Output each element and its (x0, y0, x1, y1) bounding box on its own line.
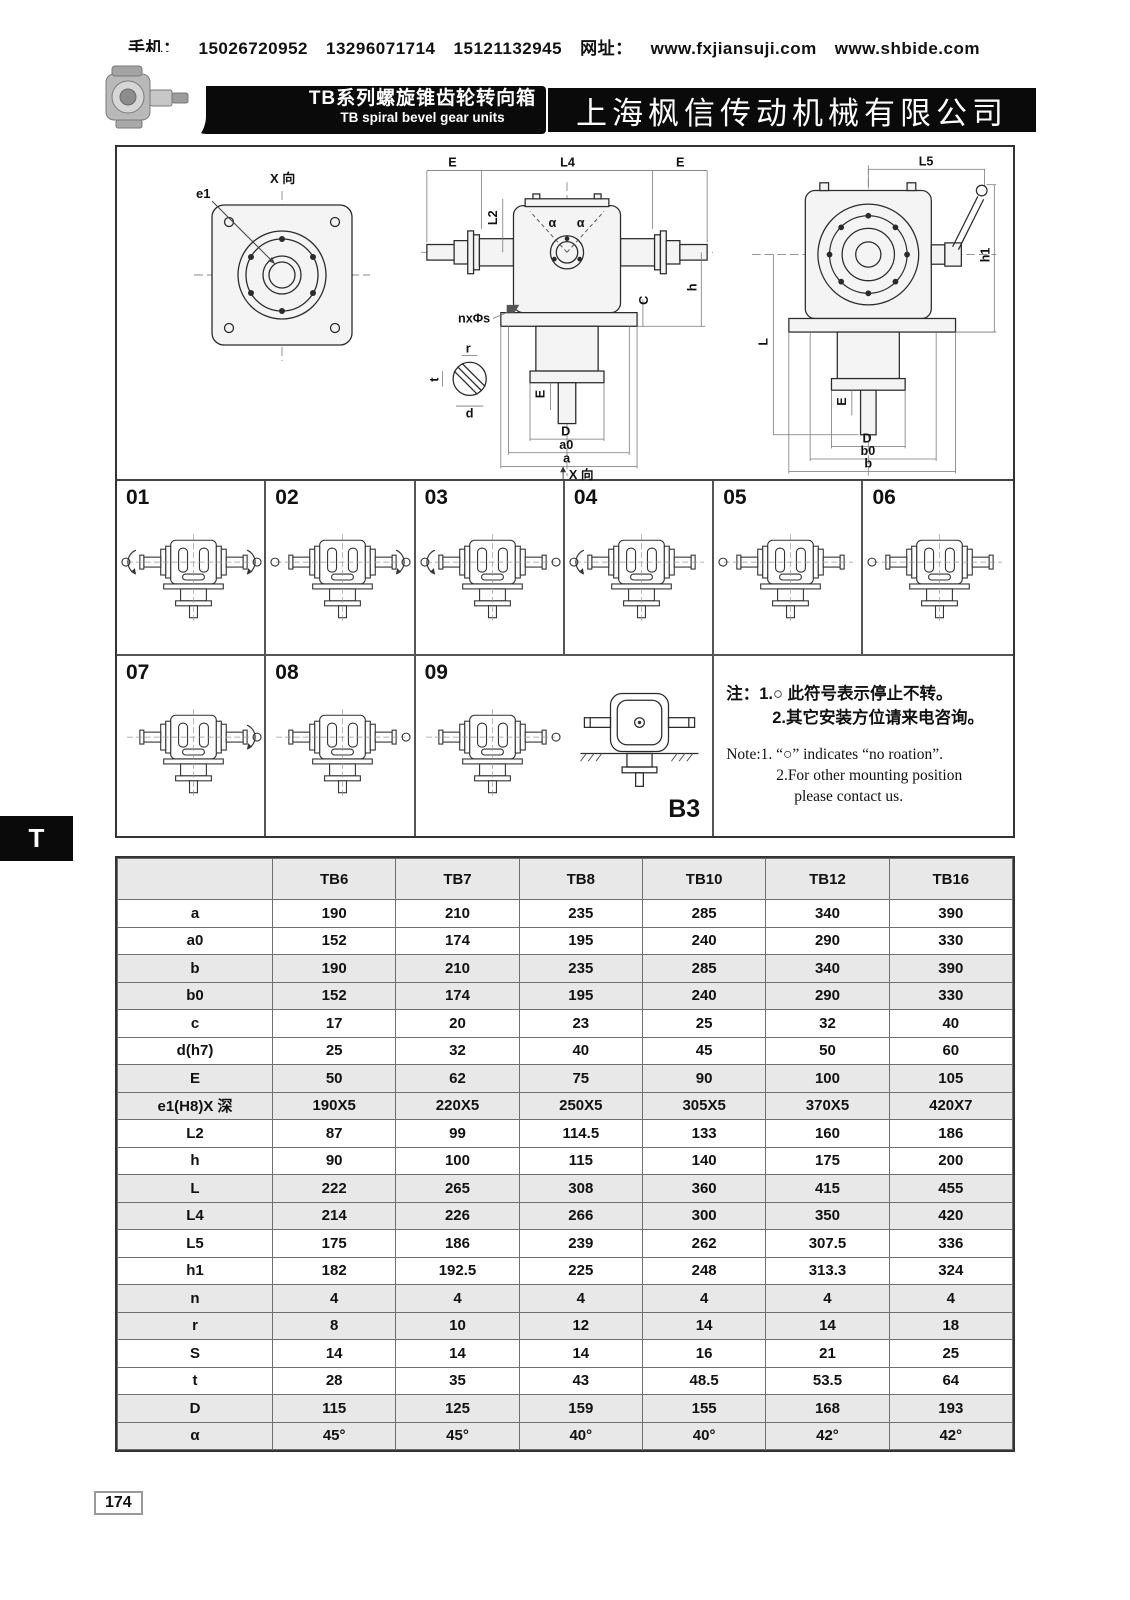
table-cell: 220X5 (396, 1092, 519, 1120)
mounting-position-cell: 08 (266, 656, 415, 836)
table-cell: 60 (889, 1037, 1012, 1065)
note-en-line3: please contact us. (794, 786, 1008, 807)
table-cell: 40° (642, 1422, 765, 1450)
table-cell: 8 (273, 1312, 396, 1340)
table-cell: 305X5 (642, 1092, 765, 1120)
dim-label-t: t (428, 377, 442, 382)
mounting-position-label: 05 (723, 486, 746, 510)
table-cell: 48.5 (642, 1367, 765, 1395)
row-label: n (118, 1285, 273, 1313)
mounting-position-cell: 06 (863, 481, 1012, 654)
row-label: L4 (118, 1202, 273, 1230)
dim-label-E-side: E (835, 397, 849, 405)
table-cell: 100 (766, 1065, 889, 1093)
mounting-position-label: 08 (275, 661, 298, 685)
row-label: b (118, 955, 273, 983)
gearbox-position-icon (565, 519, 714, 637)
table-row: b190210235285340390 (118, 955, 1013, 983)
mounting-position-label: 03 (425, 486, 448, 510)
row-label: S (118, 1340, 273, 1368)
table-cell: 290 (766, 927, 889, 955)
gearbox-position-icon (863, 519, 1012, 637)
b3-mounting-icon (567, 678, 712, 798)
row-label: c (118, 1010, 273, 1038)
dim-label-L4: L4 (560, 156, 575, 170)
table-cell: 420X7 (889, 1092, 1012, 1120)
dim-label-nxs: nxΦs (458, 311, 490, 325)
dim-label-h: h (685, 284, 699, 292)
table-cell: 115 (273, 1395, 396, 1423)
phone-3: 15121132945 (454, 39, 563, 58)
table-cell: 192.5 (396, 1257, 519, 1285)
table-cell: 225 (519, 1257, 642, 1285)
gearbox-position-icon (266, 694, 415, 812)
table-cell: 214 (273, 1202, 396, 1230)
table-cell: 330 (889, 982, 1012, 1010)
table-cell: 159 (519, 1395, 642, 1423)
dim-label-E-right: E (676, 156, 684, 170)
section-tab-letter: T (29, 823, 45, 854)
table-cell: 25 (889, 1340, 1012, 1368)
row-label: α (118, 1422, 273, 1450)
table-cell: 152 (273, 927, 396, 955)
table-row: D115125159155168193 (118, 1395, 1013, 1423)
page-number: 174 (94, 1491, 143, 1515)
table-cell: 455 (889, 1175, 1012, 1203)
section-tab: T (0, 816, 73, 861)
column-header: TB16 (889, 859, 1012, 900)
table-row: h1182192.5225248313.3324 (118, 1257, 1013, 1285)
table-cell: 4 (519, 1285, 642, 1313)
table-cell: 239 (519, 1230, 642, 1258)
table-cell: 125 (396, 1395, 519, 1423)
mounting-position-label: 02 (275, 486, 298, 510)
table-cell: 265 (396, 1175, 519, 1203)
table-cell: 25 (273, 1037, 396, 1065)
dim-label-d: d (466, 407, 474, 421)
product-photo (84, 54, 204, 146)
gearbox-position-icon (416, 694, 565, 812)
row-label: L (118, 1175, 273, 1203)
dim-label-a: a (563, 452, 571, 466)
dim-label-alpha-right: α (577, 216, 585, 230)
table-cell: 210 (396, 955, 519, 983)
table-cell: 14 (396, 1340, 519, 1368)
table-cell: 313.3 (766, 1257, 889, 1285)
view-direction-label: X 向 (270, 171, 295, 186)
table-cell: 40 (889, 1010, 1012, 1038)
table-row: r81012141418 (118, 1312, 1013, 1340)
dim-label-E-left: E (448, 156, 456, 170)
table-cell: 420 (889, 1202, 1012, 1230)
table-row: b0152174195240290330 (118, 982, 1013, 1010)
dimensions-table: TB6TB7TB8TB10TB12TB16 a19021023528534039… (115, 856, 1015, 1452)
table-cell: 35 (396, 1367, 519, 1395)
table-cell: 186 (396, 1230, 519, 1258)
table-cell: 340 (766, 955, 889, 983)
table-cell: 300 (642, 1202, 765, 1230)
web-label: 网址： (580, 39, 633, 58)
table-cell: 45° (396, 1422, 519, 1450)
dim-label-e1: e1 (196, 186, 210, 201)
table-cell: 4 (396, 1285, 519, 1313)
table-cell: 390 (889, 900, 1012, 928)
gearbox-position-icon (714, 519, 863, 637)
table-cell: 200 (889, 1147, 1012, 1175)
table-row: E50627590100105 (118, 1065, 1013, 1093)
table-cell: 174 (396, 982, 519, 1010)
column-header: TB6 (273, 859, 396, 900)
view-direction-bottom: X 向 (569, 467, 594, 481)
table-cell: 190 (273, 955, 396, 983)
table-cell: 160 (766, 1120, 889, 1148)
note-en-line1: Note:1. “○” indicates “no roation”. (726, 744, 1008, 765)
table-cell: 90 (273, 1147, 396, 1175)
table-cell: 62 (396, 1065, 519, 1093)
dim-label-C: C (637, 296, 651, 305)
series-title-zh: TB系列螺旋锥齿轮转向箱 (300, 88, 545, 110)
row-label: E (118, 1065, 273, 1093)
table-cell: 16 (642, 1340, 765, 1368)
table-cell: 140 (642, 1147, 765, 1175)
mounting-position-cell: 02 (266, 481, 415, 654)
page-number-value: 174 (105, 1494, 132, 1511)
table-row: t28354348.553.564 (118, 1367, 1013, 1395)
table-cell: 28 (273, 1367, 396, 1395)
table-cell: 14 (642, 1312, 765, 1340)
dim-label-L: L (757, 338, 771, 346)
table-cell: 100 (396, 1147, 519, 1175)
column-header: TB12 (766, 859, 889, 900)
table-cell: 20 (396, 1010, 519, 1038)
row-label: e1(H8)X 深 (118, 1092, 273, 1120)
table-cell: 360 (642, 1175, 765, 1203)
table-cell: 195 (519, 982, 642, 1010)
note-zh-line2: 2.其它安装方位请来电咨询。 (772, 706, 1008, 730)
dimension-drawings: e1 X 向 E L4 E (117, 147, 1013, 481)
table-cell: 4 (642, 1285, 765, 1313)
table-cell: 115 (519, 1147, 642, 1175)
mounting-position-label: 09 (425, 661, 448, 685)
table-row: S141414162125 (118, 1340, 1013, 1368)
series-title-en: TB spiral bevel gear units (300, 110, 545, 126)
table-cell: 4 (766, 1285, 889, 1313)
table-cell: 168 (766, 1395, 889, 1423)
table-cell: 336 (889, 1230, 1012, 1258)
table-cell: 235 (519, 900, 642, 928)
dim-label-L2: L2 (486, 210, 500, 225)
table-cell: 235 (519, 955, 642, 983)
table-row: n444444 (118, 1285, 1013, 1313)
table-cell: 193 (889, 1395, 1012, 1423)
dim-label-b: b (864, 457, 872, 471)
mounting-position-label: 07 (126, 661, 149, 685)
table-cell: 42° (889, 1422, 1012, 1450)
table-cell: 18 (889, 1312, 1012, 1340)
row-label: b0 (118, 982, 273, 1010)
table-cell: 262 (642, 1230, 765, 1258)
table-cell: 190 (273, 900, 396, 928)
table-cell: 390 (889, 955, 1012, 983)
table-cell: 340 (766, 900, 889, 928)
gearbox-position-icon (117, 694, 266, 812)
table-cell: 152 (273, 982, 396, 1010)
table-cell: 290 (766, 982, 889, 1010)
dim-label-r: r (466, 342, 471, 356)
table-cell: 175 (766, 1147, 889, 1175)
website-1: www.fxjiansuji.com (651, 39, 817, 58)
table-cell: 240 (642, 982, 765, 1010)
table-cell: 174 (396, 927, 519, 955)
series-title: TB系列螺旋锥齿轮转向箱 TB spiral bevel gear units (300, 88, 545, 126)
table-cell: 17 (273, 1010, 396, 1038)
left-view-drawing: e1 X 向 (177, 165, 387, 370)
note-zh-line1: 注：1.○ 此符号表示停止不转。 (726, 682, 1008, 706)
column-header: TB10 (642, 859, 765, 900)
table-cell: 324 (889, 1257, 1012, 1285)
company-name-bar: 上海枫信传动机械有限公司 (548, 88, 1036, 132)
table-cell: 330 (889, 927, 1012, 955)
table-cell: 45° (273, 1422, 396, 1450)
dim-label-alpha-left: α (549, 216, 557, 230)
table-cell: 105 (889, 1065, 1012, 1093)
gearbox-position-icon (416, 519, 565, 637)
table-cell: 10 (396, 1312, 519, 1340)
mounting-b3-cell: B3 (565, 656, 714, 836)
row-label: h1 (118, 1257, 273, 1285)
note-en-line2: 2.For other mounting position (776, 765, 1008, 786)
table-row: a0152174195240290330 (118, 927, 1013, 955)
contact-line: 手机：150267209521329607171415121132945网址：w… (128, 34, 1088, 59)
table-cell: 370X5 (766, 1092, 889, 1120)
table-cell: 45 (642, 1037, 765, 1065)
table-cell: 285 (642, 900, 765, 928)
row-label: D (118, 1395, 273, 1423)
mounting-position-cell: 03 (416, 481, 565, 654)
table-cell: 32 (396, 1037, 519, 1065)
table-cell: 226 (396, 1202, 519, 1230)
dim-label-L5: L5 (919, 155, 934, 168)
table-cell: 266 (519, 1202, 642, 1230)
phone-1: 15026720952 (199, 39, 309, 58)
table-cell: 240 (642, 927, 765, 955)
table-row: L28799114.5133160186 (118, 1120, 1013, 1148)
website-2: www.shbide.com (835, 39, 980, 58)
mounting-position-cell: 05 (714, 481, 863, 654)
mounting-position-label: 04 (574, 486, 597, 510)
mounting-position-cell: 09 (416, 656, 565, 836)
table-cell: 415 (766, 1175, 889, 1203)
table-cell: 99 (396, 1120, 519, 1148)
table-cell: 175 (273, 1230, 396, 1258)
gearbox-position-icon (266, 519, 415, 637)
dim-label-D: D (561, 424, 570, 438)
table-row: c172023253240 (118, 1010, 1013, 1038)
table-cell: 182 (273, 1257, 396, 1285)
row-label: a0 (118, 927, 273, 955)
table-cell: 43 (519, 1367, 642, 1395)
row-label: t (118, 1367, 273, 1395)
b3-label: B3 (668, 795, 700, 824)
table-cell: 308 (519, 1175, 642, 1203)
gearbox-position-icon (117, 519, 266, 637)
front-view-drawing: E L4 E (412, 155, 722, 481)
table-cell: 75 (519, 1065, 642, 1093)
table-cell: 32 (766, 1010, 889, 1038)
table-cell: 40° (519, 1422, 642, 1450)
mounting-position-label: 06 (872, 486, 895, 510)
table-cell: 4 (273, 1285, 396, 1313)
table-cell: 133 (642, 1120, 765, 1148)
table-row: L5175186239262307.5336 (118, 1230, 1013, 1258)
table-cell: 40 (519, 1037, 642, 1065)
table-cell: 50 (766, 1037, 889, 1065)
row-label: L5 (118, 1230, 273, 1258)
main-panel: e1 X 向 E L4 E (115, 145, 1015, 838)
mounting-position-cell: 01 (117, 481, 266, 654)
mounting-position-label: 01 (126, 486, 149, 510)
table-row: a190210235285340390 (118, 900, 1013, 928)
row-label: r (118, 1312, 273, 1340)
table-cell: 12 (519, 1312, 642, 1340)
table-cell: 4 (889, 1285, 1012, 1313)
table-cell: 87 (273, 1120, 396, 1148)
column-header: TB8 (519, 859, 642, 900)
mounting-note: 注：1.○ 此符号表示停止不转。 2.其它安装方位请来电咨询。 Note:1. … (714, 656, 1014, 836)
column-header: TB7 (396, 859, 519, 900)
table-cell: 307.5 (766, 1230, 889, 1258)
table-cell: 186 (889, 1120, 1012, 1148)
table-cell: 50 (273, 1065, 396, 1093)
side-view-drawing: L5 (752, 155, 1004, 481)
table-cell: 222 (273, 1175, 396, 1203)
mounting-position-cell: 04 (565, 481, 714, 654)
table-cell: 190X5 (273, 1092, 396, 1120)
table-cell: 90 (642, 1065, 765, 1093)
table-cell: 195 (519, 927, 642, 955)
table-cell: 248 (642, 1257, 765, 1285)
row-label: d(h7) (118, 1037, 273, 1065)
table-cell: 350 (766, 1202, 889, 1230)
table-corner-cell (118, 859, 273, 900)
table-row: L222265308360415455 (118, 1175, 1013, 1203)
phone-2: 13296071714 (326, 39, 436, 58)
table-row: h90100115140175200 (118, 1147, 1013, 1175)
row-label: a (118, 900, 273, 928)
table-row: e1(H8)X 深190X5220X5250X5305X5370X5420X7 (118, 1092, 1013, 1120)
table-cell: 64 (889, 1367, 1012, 1395)
table-cell: 114.5 (519, 1120, 642, 1148)
table-cell: 14 (273, 1340, 396, 1368)
company-name: 上海枫信传动机械有限公司 (576, 88, 1008, 133)
table-cell: 14 (766, 1312, 889, 1340)
table-cell: 250X5 (519, 1092, 642, 1120)
dim-label-a0: a0 (559, 438, 573, 452)
table-cell: 23 (519, 1010, 642, 1038)
gearbox-photo-icon (92, 60, 196, 140)
table-cell: 25 (642, 1010, 765, 1038)
mounting-grid-row-2: 070809 B3 (117, 656, 1013, 836)
table-cell: 210 (396, 900, 519, 928)
catalog-page: 手机：150267209521329607171415121132945网址：w… (0, 0, 1130, 1600)
dim-label-h1: h1 (978, 248, 992, 263)
table-cell: 14 (519, 1340, 642, 1368)
table-row: d(h7)253240455060 (118, 1037, 1013, 1065)
table-cell: 21 (766, 1340, 889, 1368)
table-row: L4214226266300350420 (118, 1202, 1013, 1230)
table-row: α45°45°40°40°42°42° (118, 1422, 1013, 1450)
table-cell: 285 (642, 955, 765, 983)
table-cell: 53.5 (766, 1367, 889, 1395)
row-label: L2 (118, 1120, 273, 1148)
dim-label-E-shaft: E (534, 390, 548, 398)
mounting-position-cell: 07 (117, 656, 266, 836)
table-cell: 155 (642, 1395, 765, 1423)
row-label: h (118, 1147, 273, 1175)
mounting-grid-row-1: 010203040506 (117, 481, 1013, 656)
table-cell: 42° (766, 1422, 889, 1450)
